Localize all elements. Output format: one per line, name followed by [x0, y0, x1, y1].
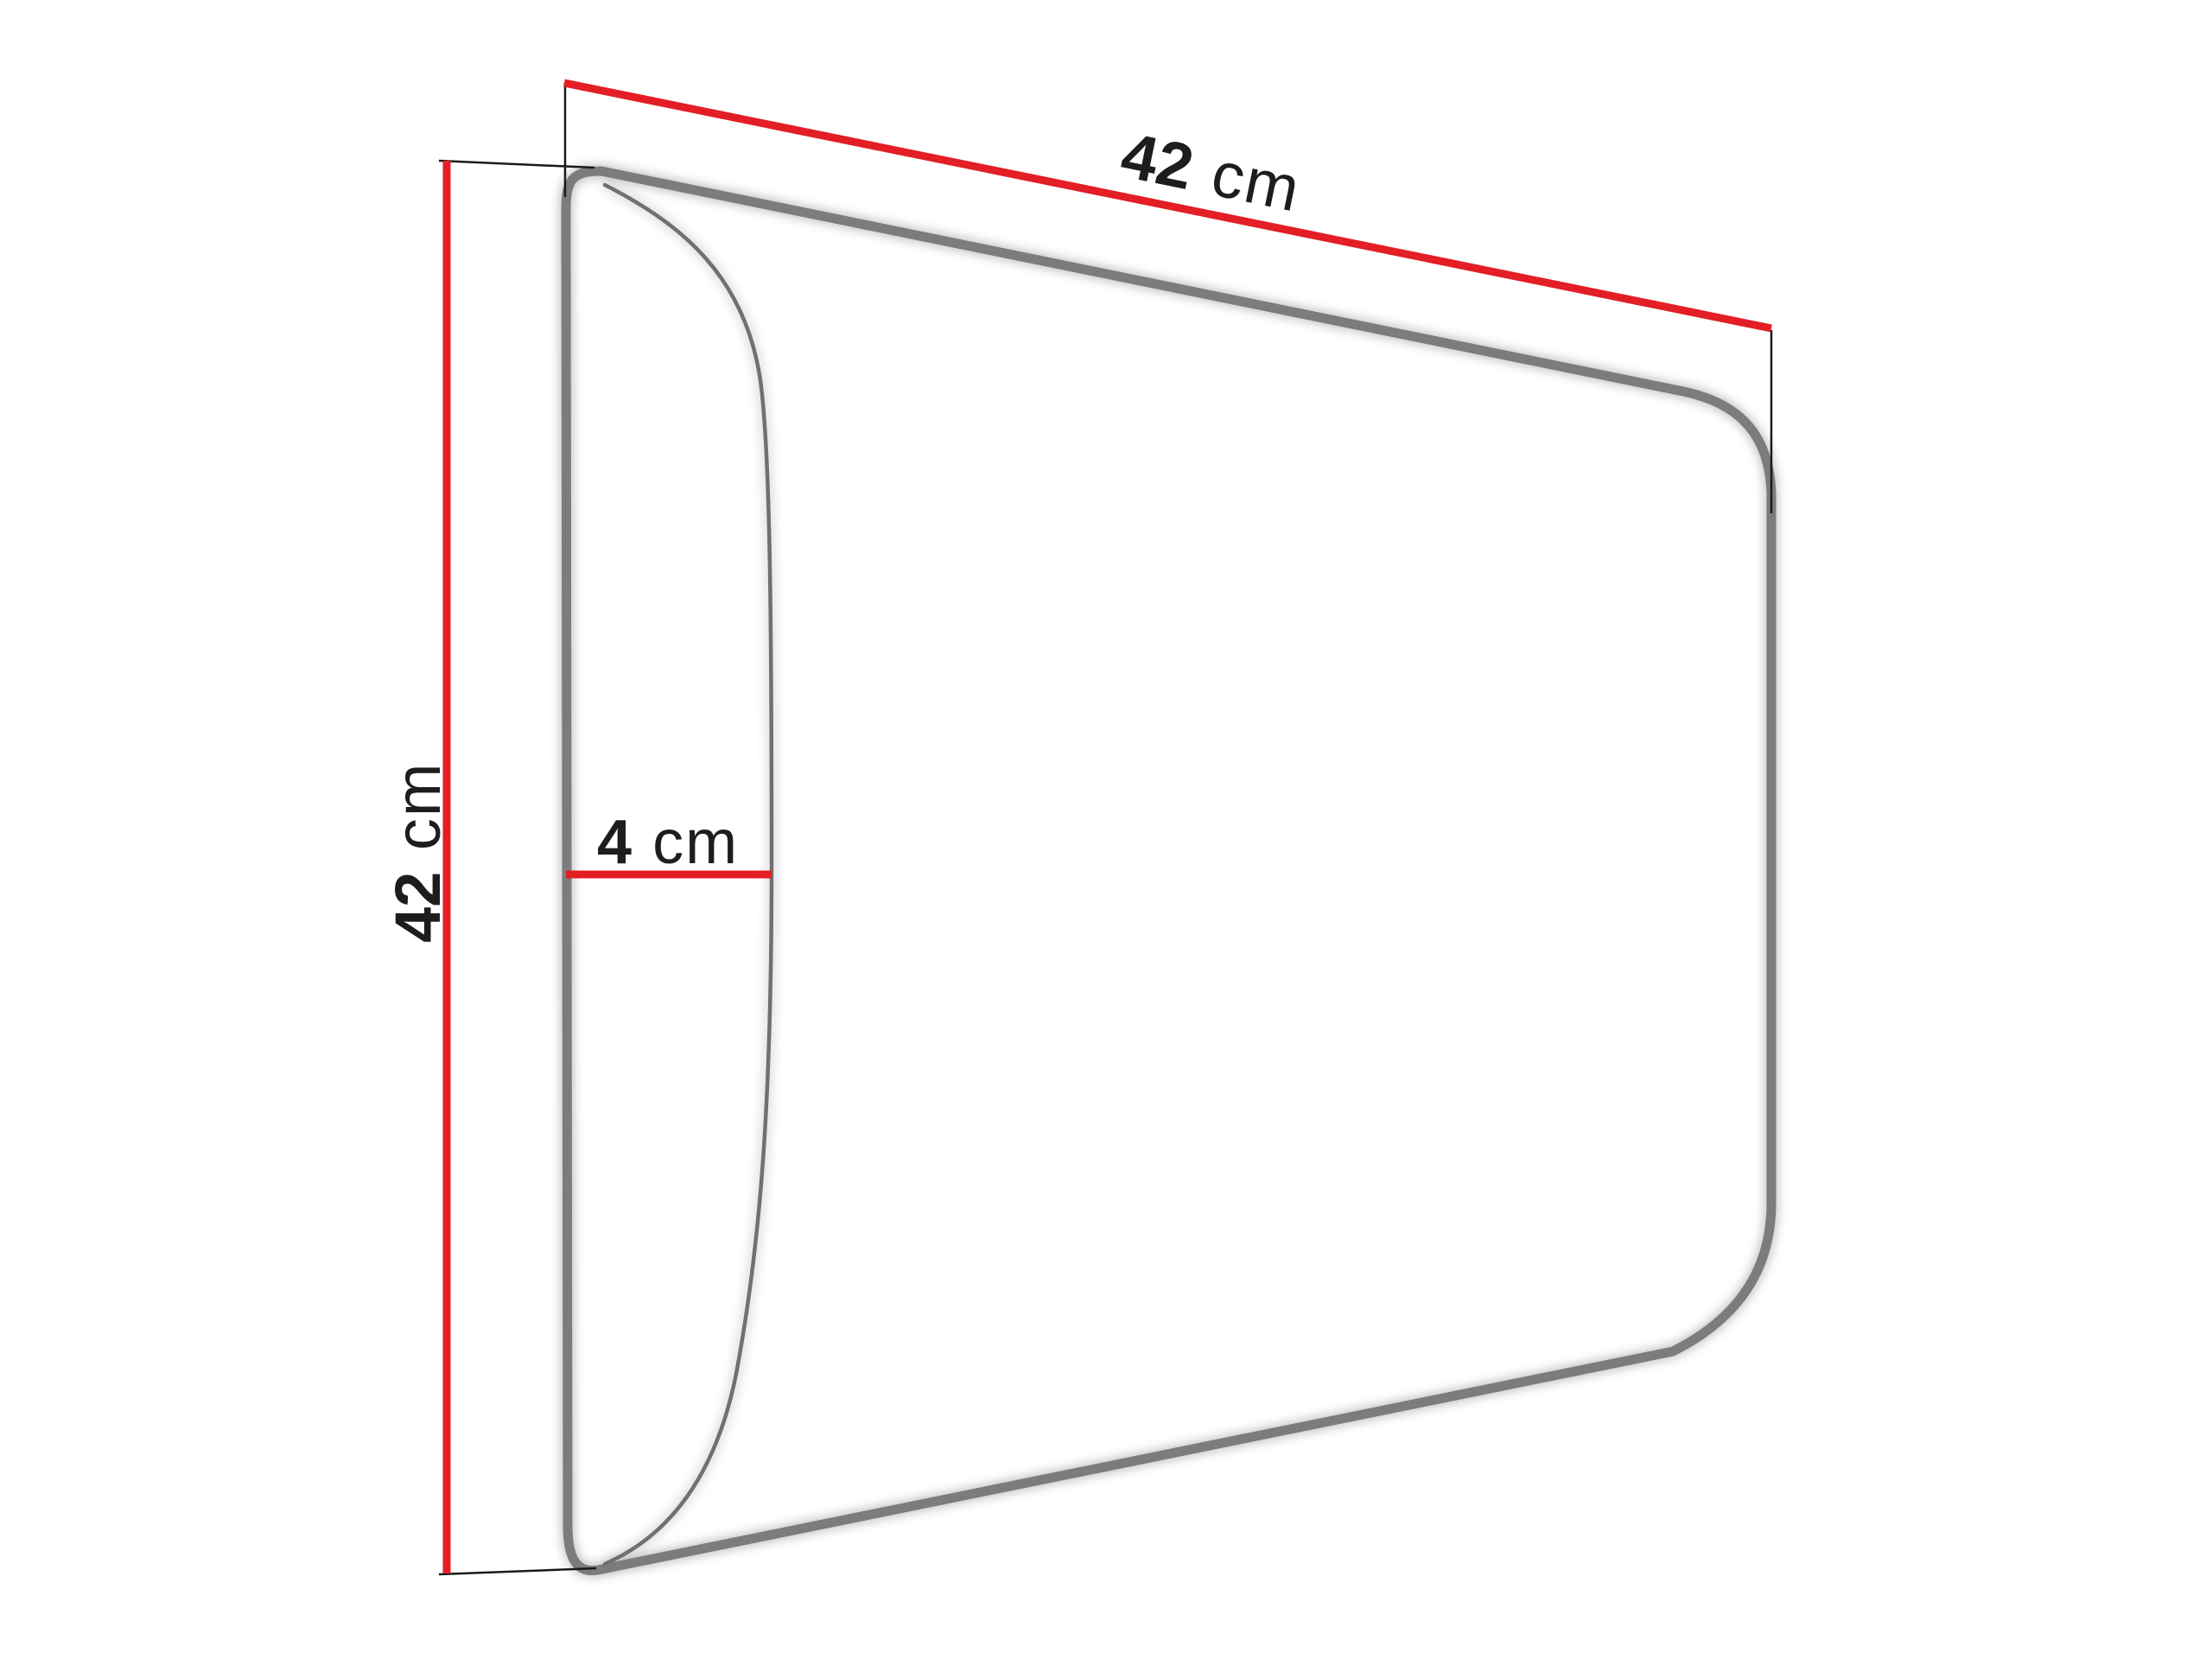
depth-dimension-label: 4 cm [597, 808, 739, 877]
page: 42 cm 42 cm 4 cm [0, 0, 2212, 1659]
panel-dimension-diagram: 42 cm 42 cm 4 cm [0, 0, 2212, 1659]
depth-value: 4 [597, 808, 632, 877]
height-unit: cm [382, 761, 454, 850]
depth-unit: cm [652, 808, 739, 877]
background [0, 0, 2212, 1659]
width-value: 42 [1116, 118, 1199, 203]
height-value: 42 [382, 872, 454, 943]
